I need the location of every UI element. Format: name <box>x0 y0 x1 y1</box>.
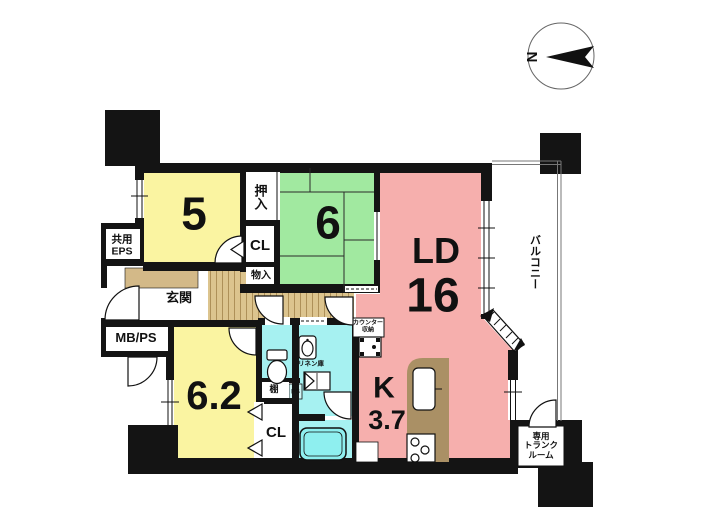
shared-eps-label: 共用 EPS <box>111 234 132 257</box>
counter-storage-line2: 収納 <box>353 327 383 334</box>
washbasin-icon <box>299 336 316 359</box>
ps-label: PS <box>291 388 300 395</box>
closet-lower-label: CL <box>266 425 286 442</box>
closet-upper-label: CL <box>250 238 270 255</box>
floor-plan-drawing <box>0 0 705 525</box>
genkan-label: 玄関 <box>166 291 192 305</box>
ld-size-label: 16 <box>406 271 459 324</box>
room6-label: 6 <box>315 198 341 249</box>
shelf-label: 棚 <box>269 385 278 395</box>
ld-label: LD <box>412 231 460 271</box>
monoire-label: 物入 <box>251 271 271 282</box>
counter-storage-label: カウンター 収納 <box>353 320 383 333</box>
kitchen-counter <box>407 358 449 462</box>
kitchen-size-label: 3.7 <box>368 406 406 436</box>
bathtub-icon <box>300 428 346 460</box>
counter-storage-icon <box>359 337 381 357</box>
toilet-icon <box>267 350 287 384</box>
trunk-room-line3: ルーム <box>524 451 558 460</box>
balcony-label: バルコニー <box>529 235 540 290</box>
trunk-room-label: 専用 トランク ルーム <box>524 432 558 460</box>
linen-closet-icon <box>304 372 330 390</box>
linen-label: リネン庫 <box>298 360 324 367</box>
north-label: N <box>525 52 542 63</box>
kitchen-label: K <box>373 372 395 405</box>
room5-label: 5 <box>181 189 207 240</box>
floor-plan: 5 6 6.2 LD 16 K 3.7 押入 CL 物入 玄関 共用 EPS M… <box>0 0 705 525</box>
oshiire-label: 押入 <box>254 184 267 210</box>
room62-label: 6.2 <box>186 374 242 418</box>
shared-eps-line1: 共用 <box>111 234 132 246</box>
counter-storage-line1: カウンター <box>353 320 383 327</box>
mb-ps-label: MB/PS <box>115 331 156 345</box>
shared-eps-line2: EPS <box>111 246 132 258</box>
